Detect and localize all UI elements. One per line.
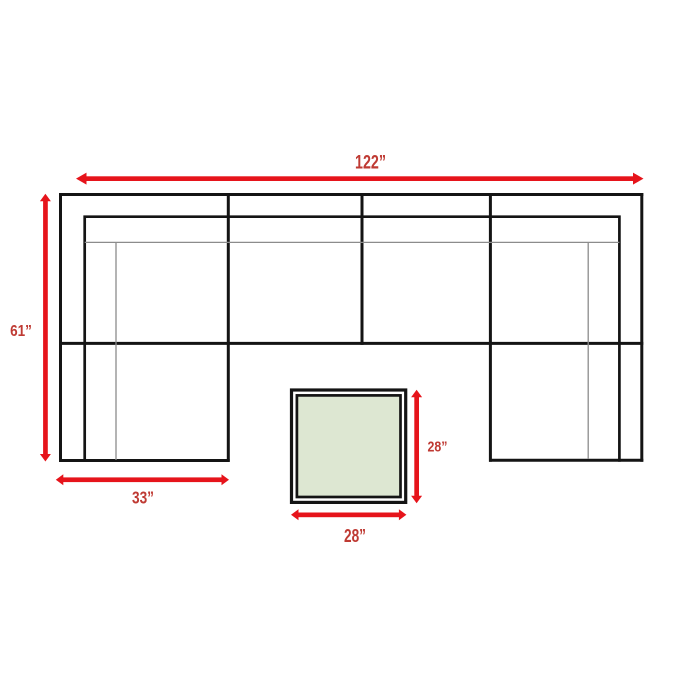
svg-text:28”: 28” [428, 439, 448, 456]
svg-text:122”: 122” [355, 153, 386, 174]
svg-text:61”: 61” [10, 323, 32, 340]
svg-text:28”: 28” [344, 525, 366, 546]
svg-text:33”: 33” [132, 487, 154, 507]
